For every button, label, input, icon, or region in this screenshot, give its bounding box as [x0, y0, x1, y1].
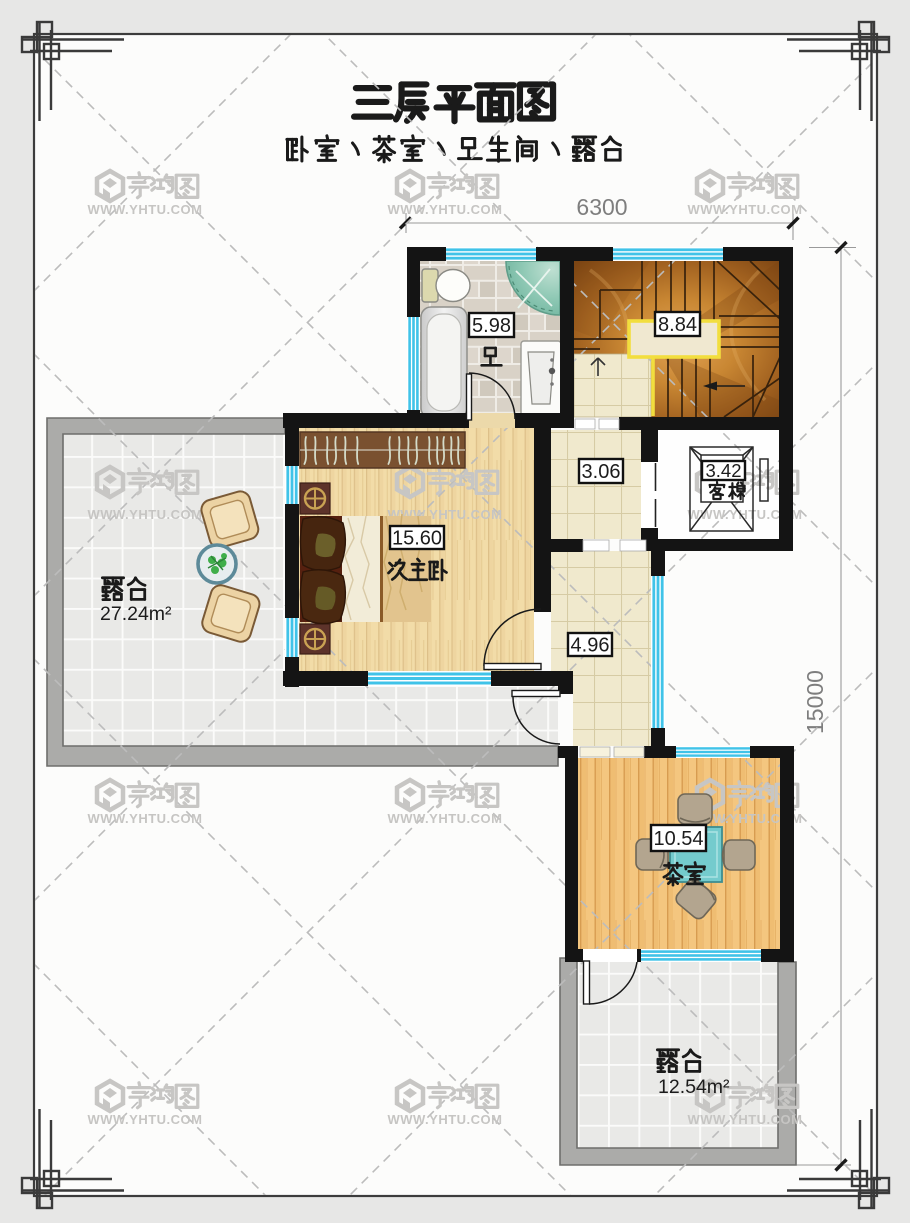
- svg-text:10.54: 10.54: [653, 828, 703, 850]
- svg-text:WWW.YHTU.COM: WWW.YHTU.COM: [87, 202, 202, 217]
- svg-text:WWW.YHTU.COM: WWW.YHTU.COM: [387, 811, 502, 826]
- svg-text:8.84: 8.84: [658, 314, 697, 336]
- svg-text:12.54m²: 12.54m²: [658, 1076, 730, 1098]
- svg-text:WWW.YHTU.COM: WWW.YHTU.COM: [87, 811, 202, 826]
- svg-text:27.24m²: 27.24m²: [100, 603, 172, 625]
- svg-text:WWW.YHTU.COM: WWW.YHTU.COM: [87, 1112, 202, 1127]
- svg-text:6300: 6300: [576, 194, 627, 220]
- svg-text:15.60: 15.60: [392, 528, 442, 550]
- svg-text:3.06: 3.06: [582, 461, 621, 483]
- svg-text:WWW.YHTU.COM: WWW.YHTU.COM: [687, 202, 802, 217]
- svg-text:WWW.YHTU.COM: WWW.YHTU.COM: [687, 1112, 802, 1127]
- svg-text:15000: 15000: [802, 670, 828, 734]
- svg-text:5.98: 5.98: [472, 315, 511, 337]
- svg-text:WWW.YHTU.COM: WWW.YHTU.COM: [387, 1112, 502, 1127]
- svg-text:3.42: 3.42: [705, 460, 741, 481]
- svg-text:4.96: 4.96: [571, 635, 610, 657]
- svg-text:WWW.YHTU.COM: WWW.YHTU.COM: [87, 507, 202, 522]
- svg-text:WWW.YHTU.COM: WWW.YHTU.COM: [387, 202, 502, 217]
